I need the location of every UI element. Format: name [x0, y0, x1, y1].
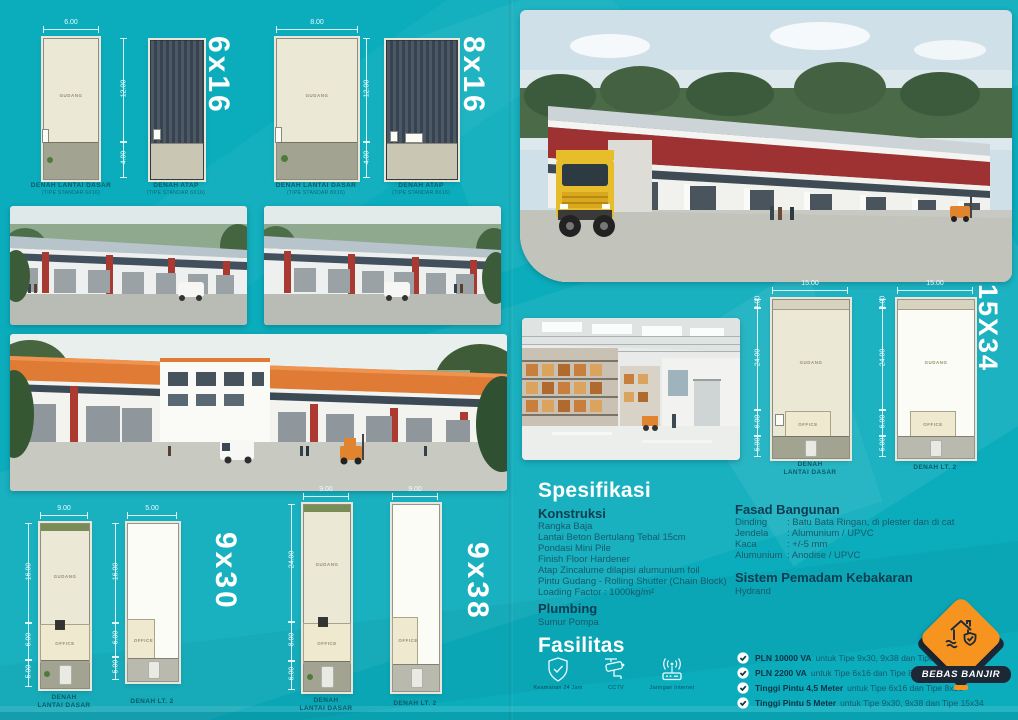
door-marker [42, 129, 49, 143]
office-area: OFFICE [40, 624, 90, 663]
dim-line [43, 29, 99, 30]
plan-title: DENAH [770, 461, 850, 468]
spesifikasi-title: Spesifikasi [538, 479, 651, 503]
car-marker [321, 666, 334, 688]
door-marker [275, 127, 282, 143]
plan-title: LANTAI DASAR [286, 705, 366, 712]
fasad-value: : Alumunium / UPVC [787, 528, 874, 539]
estate-render-photo [520, 10, 1012, 282]
void-area [898, 436, 974, 458]
plan-subtitle: (TIPE STANDAR 6X16) [18, 190, 124, 196]
plan-subtitle: (TIPE STANDAR 8X16) [376, 190, 466, 196]
dim-label: 16.00 [113, 552, 120, 592]
check-circle-icon [737, 682, 749, 694]
type-label-9x38: 9x38 [462, 542, 492, 621]
room-label: GUDANG [915, 360, 957, 365]
dim-label: 9.00 [392, 486, 438, 493]
dim-label: 5.00 [127, 505, 177, 512]
plan-title: DENAH [286, 697, 366, 704]
roof-front-area [387, 143, 457, 179]
highlight-bold: Tinggi Pintu 4,5 Meter [755, 683, 843, 693]
ground-plan-9x38: GUDANG OFFICE [303, 504, 351, 692]
highlight-bold: PLN 10000 VA [755, 653, 812, 663]
fasad-label: Dinding [735, 517, 787, 528]
plumbing-heading: Plumbing [538, 601, 597, 616]
dim-label: 6.00 [43, 19, 99, 26]
dim-label: 8.00 [276, 19, 358, 26]
dim-label: 12.00 [364, 69, 371, 109]
carport-area [41, 660, 89, 688]
konstruksi-line: Atap Zincalume dilapisi alumunium foil [538, 565, 700, 576]
plan-title: DENAH ATAP [376, 182, 466, 189]
pemadam-heading: Sistem Pemadam Kebakaran [735, 570, 913, 585]
car-marker [59, 665, 72, 685]
ground-plan-9x30: GUDANG OFFICE [40, 523, 90, 689]
fasad-row: Kaca: +/-5 mm [735, 539, 827, 550]
warehouse-row-photo-2 [264, 206, 501, 325]
plan-title: DENAH LANTAI DASAR [18, 182, 124, 189]
highlight-bold: Tinggi Pintu 5 Meter [755, 698, 836, 708]
dim-line [40, 515, 88, 516]
door-marker [775, 414, 784, 426]
fasad-row: Dinding: Batu Bata Ringan, di plester da… [735, 517, 954, 528]
setback-strip [898, 300, 974, 310]
konstruksi-line: Finish Floor Hardener [538, 554, 630, 565]
room-label: GUDANG [314, 562, 339, 567]
carport-area [44, 142, 98, 179]
dim-label: 24.00 [880, 338, 887, 378]
badge-tab [954, 685, 968, 690]
dim-line [772, 290, 848, 291]
dim-label: 4.00 [121, 138, 128, 178]
dim-label: 4.00 [364, 138, 371, 178]
office-area: OFFICE [785, 411, 831, 439]
fasad-row: Alumunium: Anodise / UPVC [735, 550, 860, 561]
door-marker [55, 620, 65, 630]
facility-item-internet: Jaringan Internet [644, 656, 700, 691]
ground-plan-15x34: GUDANG OFFICE [772, 299, 850, 459]
konstruksi-line: Rangka Baja [538, 521, 592, 532]
interior-warehouse-photo [522, 318, 740, 460]
void-area [393, 664, 439, 691]
konstruksi-line: Lantai Beton Bertulang Tebal 15cm [538, 532, 686, 543]
flood-free-badge: BEBAS BANJIR [910, 592, 1012, 694]
room-label: OFFICE [314, 641, 339, 646]
office-area: OFFICE [392, 617, 418, 665]
dim-line [276, 29, 358, 30]
brochure-page: 6.00 GUDANG 12.00 4.00 DENAH LANTAI DASA… [0, 0, 1018, 720]
dim-label: 16.00 [26, 552, 33, 592]
plant-marker [307, 674, 313, 680]
lt2-plan-9x38: OFFICE [392, 504, 440, 692]
void-area [128, 658, 178, 681]
dim-label: 9.00 [40, 505, 88, 512]
dim-label: 15.00 [772, 280, 848, 287]
highlight-text: untuk Tipe 9x30, 9x38 dan Tipe 15x34 [840, 698, 984, 708]
plumbing-line: Sumur Pompa [538, 617, 599, 628]
dim-label: 2.00 [755, 283, 762, 323]
konstruksi-line: Pondasi Mini Pile [538, 543, 611, 554]
dim-line [303, 496, 349, 497]
dim-label: 24.00 [289, 540, 296, 580]
room-label: OFFICE [796, 422, 820, 427]
setback-strip [773, 300, 849, 310]
dim-line [392, 496, 438, 497]
room-label: GUDANG [56, 93, 86, 98]
type-label-9x30: 9x30 [210, 532, 240, 611]
type-label-8x16: 8x16 [458, 36, 488, 115]
warehouse-row-photo-1 [10, 206, 247, 325]
room-label: GUDANG [790, 360, 832, 365]
facility-item-security: Keamanan 24 Jam [530, 656, 586, 691]
dim-label: 5.00 [880, 425, 887, 465]
badge-banner: BEBAS BANJIR [911, 666, 1011, 683]
roof-unit [405, 133, 423, 143]
plan-subtitle: (TIPE STANDAR 6X16) [131, 190, 221, 196]
orange-warehouse-render [10, 334, 507, 491]
plan-title: DENAH LT. 2 [112, 698, 192, 705]
fasad-value: : +/-5 mm [787, 539, 827, 550]
roof-front-area [151, 143, 203, 179]
garden-strip [304, 505, 350, 512]
konstruksi-line: Loading Factor : 1000kg/m² [538, 587, 654, 598]
room-label: GUDANG [52, 574, 78, 579]
highlight-row: PLN 2200 VA untuk Tipe 6x16 dan Tipe 8x1… [737, 667, 927, 679]
office-area: OFFICE [910, 411, 956, 439]
check-circle-icon [737, 697, 749, 709]
fasad-row: Jendela: Alumunium / UPVC [735, 528, 874, 539]
fasad-label: Alumunium [735, 550, 787, 561]
dim-line [897, 290, 973, 291]
konstruksi-line: Pintu Gudang - Rolling Shutter (Chain Bl… [538, 576, 727, 587]
plan-title: DENAH [24, 694, 104, 701]
dim-label: 6.00 [289, 654, 296, 694]
cctv-icon [602, 656, 630, 683]
plant-marker [44, 671, 50, 677]
dim-label: 12.00 [121, 69, 128, 109]
fold-line [509, 0, 513, 720]
badge-label: BEBAS BANJIR [922, 669, 1000, 680]
fasad-heading: Fasad Bangunan [735, 502, 840, 517]
facility-item-cctv: CCTV [588, 656, 644, 691]
facility-label: Jaringan Internet [644, 685, 700, 691]
dim-label: 5.00 [755, 425, 762, 465]
pemadam-line: Hydrand [735, 586, 771, 597]
plan-title: DENAH LT. 2 [895, 464, 975, 471]
fasad-value: : Anodise / UPVC [787, 550, 860, 561]
ground-plan-8x16: GUDANG [276, 38, 358, 180]
highlight-bold: PLN 2200 VA [755, 668, 807, 678]
car-marker [805, 440, 817, 457]
door-marker [318, 617, 328, 627]
konstruksi-heading: Konstruksi [538, 506, 606, 521]
car-marker [930, 440, 942, 457]
car-marker [148, 661, 160, 679]
roof-vent [390, 131, 398, 142]
plant-marker [47, 157, 53, 163]
plant-marker [281, 155, 288, 162]
car-marker [411, 668, 423, 688]
fasilitas-title: Fasilitas [538, 634, 625, 658]
highlight-row: Tinggi Pintu 5 Meter untuk Tipe 9x30, 9x… [737, 697, 984, 709]
type-label-6x16: 6x16 [203, 36, 233, 115]
dim-label: 24.00 [755, 338, 762, 378]
room-label: GUDANG [295, 93, 339, 98]
plan-subtitle: (TIPE STANDAR 8X16) [266, 190, 366, 196]
plan-title: DENAH ATAP [131, 182, 221, 189]
dim-label: 9.00 [303, 486, 349, 493]
room-label: OFFICE [52, 641, 78, 646]
facility-label: CCTV [588, 685, 644, 691]
fasad-value: : Batu Bata Ringan, di plester dan di ca… [787, 517, 954, 528]
roof-vent [153, 129, 161, 140]
room-label: OFFICE [398, 638, 411, 643]
dim-label: 5.00 [113, 647, 120, 687]
roof-plan-6x16 [150, 40, 204, 180]
plan-title: LANTAI DASAR [24, 702, 104, 709]
check-circle-icon [737, 652, 749, 664]
internet-icon [658, 656, 686, 683]
plan-title: LANTAI DASAR [770, 469, 850, 476]
facility-label: Keamanan 24 Jam [530, 685, 586, 691]
fasad-label: Kaca [735, 539, 787, 550]
flood-house-icon [943, 615, 979, 649]
plan-title: DENAH LT. 2 [375, 700, 455, 707]
carport-area [773, 436, 849, 458]
room-label: OFFICE [134, 638, 148, 643]
lt2-plan-9x30: OFFICE [127, 523, 179, 682]
room-label: OFFICE [921, 422, 945, 427]
dim-label: 2.00 [880, 283, 887, 323]
carport-area [304, 661, 350, 691]
plan-title: DENAH LANTAI DASAR [266, 182, 366, 189]
carport-area [277, 142, 357, 179]
fasad-label: Jendela [735, 528, 787, 539]
dim-label: 5.00 [26, 652, 33, 692]
check-circle-icon [737, 667, 749, 679]
roof-plan-8x16 [386, 40, 458, 180]
ground-plan-6x16: GUDANG [43, 38, 99, 180]
bottom-edge [0, 712, 1018, 720]
office-area: OFFICE [127, 619, 155, 663]
garden-strip [41, 524, 89, 531]
office-area: OFFICE [303, 623, 351, 664]
lt2-plan-15x34: GUDANG OFFICE [897, 299, 975, 459]
shield-check-icon [545, 656, 571, 683]
dim-label: 15.00 [897, 280, 973, 287]
type-label-15x34: 15X34 [974, 284, 1001, 372]
dim-line [127, 515, 177, 516]
